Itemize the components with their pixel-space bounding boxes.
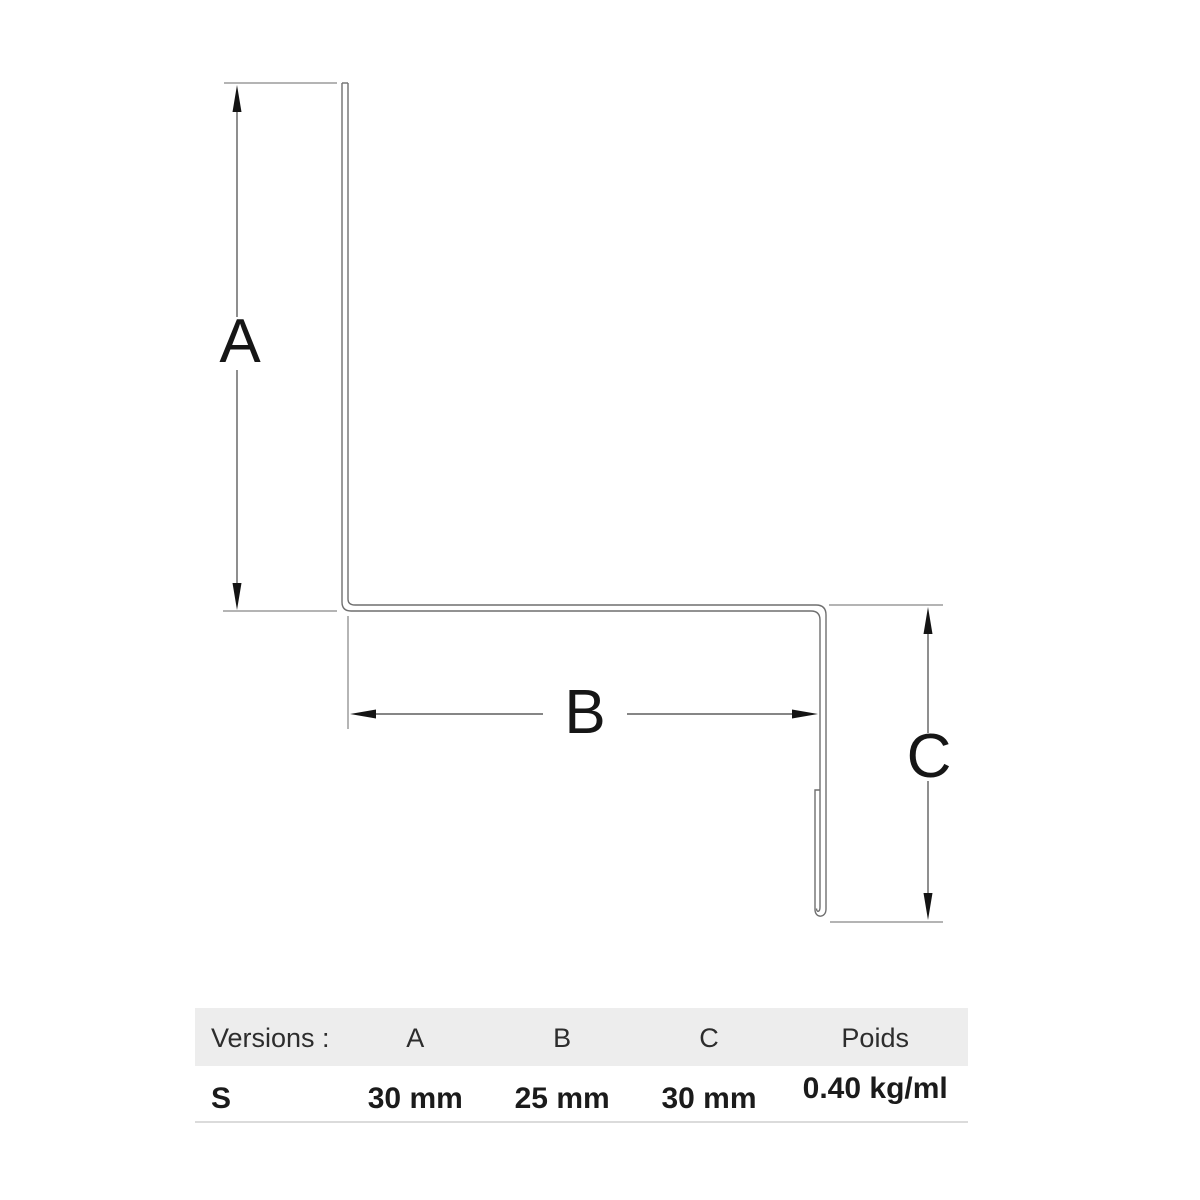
header-poids: Poids <box>782 1023 968 1054</box>
header-c: C <box>636 1023 783 1054</box>
arrow-c-down-icon <box>924 893 933 920</box>
spec-table: Versions : A B C Poids S 30 mm 25 mm 30 … <box>195 1008 968 1123</box>
header-a: A <box>342 1023 489 1054</box>
page: A B C Versions : A B C Poids S 30 mm 25 … <box>0 0 1200 1200</box>
spec-table-header-row: Versions : A B C Poids <box>195 1008 968 1066</box>
arrow-a-down-icon <box>233 583 242 610</box>
extension-lines <box>223 83 943 922</box>
profile-face-outer <box>348 83 826 916</box>
profile-outline <box>342 83 826 916</box>
cell-b-value: 25 mm <box>489 1082 636 1116</box>
dimension-lines <box>237 110 928 895</box>
cell-version: S <box>195 1082 342 1116</box>
arrow-b-left-icon <box>350 710 376 719</box>
arrow-a-up-icon <box>233 85 242 112</box>
spec-table-data-row: S 30 mm 25 mm 30 mm 0.40 kg/ml <box>195 1071 968 1123</box>
header-b: B <box>489 1023 636 1054</box>
dim-label-b: B <box>564 682 605 744</box>
dim-label-a: A <box>219 311 260 373</box>
header-versions: Versions : <box>195 1023 342 1054</box>
cell-poids-value: 0.40 kg/ml <box>782 1072 968 1106</box>
arrowheads <box>233 85 933 920</box>
arrow-b-right-icon <box>792 710 818 719</box>
arrow-c-up-icon <box>924 607 933 634</box>
cell-c-value: 30 mm <box>636 1082 783 1116</box>
cell-a-value: 30 mm <box>342 1082 489 1116</box>
profile-face-inner <box>342 83 820 911</box>
dim-label-c: C <box>907 726 952 788</box>
